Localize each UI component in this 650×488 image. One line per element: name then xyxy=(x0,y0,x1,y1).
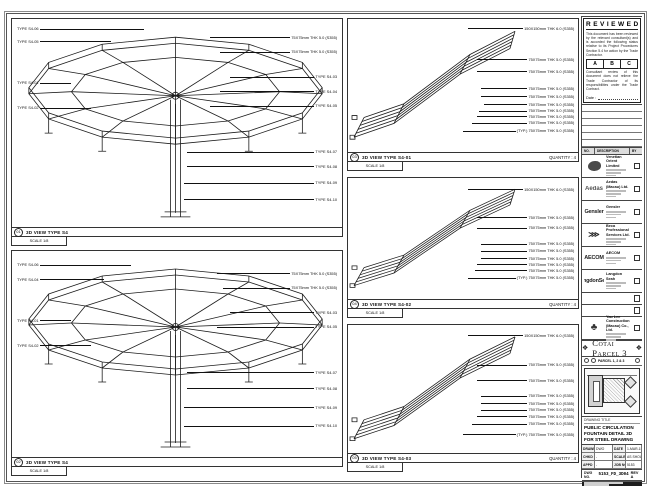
consultant-info: Venetian Orient Limited xyxy=(606,155,632,176)
drawing-title: PUBLIC CIRCULATION FOUNTAIN DETAIL 3D FO… xyxy=(584,424,640,443)
rev-col-description: DESCRIPTION xyxy=(595,148,630,154)
checkbox-icon xyxy=(634,325,641,332)
drawing-sheet-screenshot: TYPE S4-06TYPE S4-05TYPE S4-01TYPE S4-02… xyxy=(0,0,650,488)
scale-label: SCALE 1/8 xyxy=(11,467,67,476)
key-plan-block-hatched xyxy=(603,378,624,403)
reviewed-stamp-section: REVIEWED This document has been reviewed… xyxy=(582,17,642,105)
key-plan-header: PARCEL 1, 2 & 3 xyxy=(582,357,642,366)
scale-label: SCALE 1/8 xyxy=(11,237,67,246)
key-plan-pavilion xyxy=(624,376,637,389)
checkbox-icon xyxy=(634,307,641,314)
key-plan-pavilion xyxy=(624,395,637,408)
address-placeholder-line xyxy=(606,260,621,262)
title-block-fields: DRAWN DWO DATE 1-MAR-15 CHKD - SCALE AS … xyxy=(582,445,642,470)
revision-row-empty xyxy=(582,112,642,119)
revision-row-empty xyxy=(582,140,642,147)
rev-col-no: NO. xyxy=(582,148,595,154)
stamp-date-row: Date : xyxy=(586,93,638,101)
consultant-info: Aedas (Macau) Ltd. xyxy=(606,180,632,197)
revision-row-empty xyxy=(582,126,642,133)
field-jobno-label: JOB NO. xyxy=(613,461,626,469)
yaulee-tree-icon: ♣ xyxy=(591,323,598,333)
plot-reference-bar xyxy=(582,484,642,486)
address-placeholder-line xyxy=(606,333,626,335)
reviewed-stamp: REVIEWED This document has been reviewed… xyxy=(583,18,641,103)
project-title: Cotai Parcel 3 xyxy=(592,338,631,358)
aedas-logo-icon: Aedas xyxy=(584,186,604,192)
sheet-inner-border: TYPE S4-06TYPE S4-05TYPE S4-01TYPE S4-02… xyxy=(6,13,645,482)
address-placeholder-line xyxy=(606,175,616,177)
beca-chevrons-icon: ⋙ xyxy=(588,230,599,239)
scale-label: SCALE 1/8 xyxy=(347,463,403,472)
address-placeholder-line xyxy=(606,263,616,265)
drawing-number-row: DWG NO. 5153_FD_3D04 REV A xyxy=(582,470,642,481)
field-appd-label: APPD xyxy=(582,461,595,469)
field-date-label: DATE xyxy=(613,445,626,453)
pipe-wireframe xyxy=(348,19,578,152)
revision-badge: REV A xyxy=(631,471,640,479)
checkbox-icon xyxy=(634,255,641,262)
sheet-border: TYPE S4-06TYPE S4-05TYPE S4-01TYPE S4-02… xyxy=(4,11,647,484)
key-plan-block-west xyxy=(588,375,603,407)
consultant-row: AECOMAECOM xyxy=(582,247,642,270)
checkbox-icon xyxy=(634,232,641,239)
panel-title: 3D VIEW TYPE S4-02 xyxy=(362,302,411,307)
scale-label: SCALE 1/8 xyxy=(347,309,403,318)
consultant-row: AedasAedas (Macau) Ltd. xyxy=(582,178,642,201)
consultant-row: ♣Yau Lee Construction (Macau) Co., Ltd. xyxy=(582,317,642,340)
address-placeholder-line xyxy=(606,241,621,243)
marker-dot-icon xyxy=(635,358,640,363)
panel-title-bar: 03 3D VIEW TYPE S4-01 QUANTITY : 4 xyxy=(347,153,579,162)
address-placeholder-line xyxy=(606,193,621,195)
marker-dot-icon xyxy=(591,358,596,363)
revision-row-empty xyxy=(582,133,642,140)
project-banner: ❖ Cotai Parcel 3 ❖ xyxy=(582,341,642,357)
consultant-name: Gensler xyxy=(606,205,632,209)
gensler-wordmark: Gensler xyxy=(584,209,603,215)
address-placeholder-line xyxy=(606,257,626,259)
canopy-wireframe xyxy=(12,19,342,227)
panel-title-bar: 02 3D VIEW TYPE S4 xyxy=(11,458,343,467)
address-placeholder-line xyxy=(606,238,626,240)
consultant-info: Gensler xyxy=(606,205,632,218)
address-placeholder-line xyxy=(606,172,621,174)
grade-c: C xyxy=(621,60,637,68)
north-arrow-icon xyxy=(584,358,589,363)
grade-b: B xyxy=(604,60,621,68)
consultant-info: Beca Professional Services Ltd. xyxy=(606,224,632,245)
yaulee-logo-icon: ♣ xyxy=(584,323,604,333)
consultant-name: AECOM xyxy=(606,251,632,255)
consultant-name: Yau Lee Construction (Macau) Co., Ltd. xyxy=(606,315,632,332)
date-fill-line xyxy=(598,95,638,100)
reviewed-stamp-disclaimer: Consultant review of this document does … xyxy=(586,69,638,93)
consultant-name: Aedas (Macau) Ltd. xyxy=(606,180,632,189)
detail-number-bubble: 03 xyxy=(350,153,359,162)
field-drawn-label: DRAWN xyxy=(582,445,595,453)
venetian-swirl-icon xyxy=(588,161,601,171)
key-plan-courtyard xyxy=(593,381,600,402)
consultant-row-empty xyxy=(582,293,642,305)
dwg-no-value: 5153_FD_3D04 xyxy=(598,473,628,477)
consultant-row: LangdonSeahLangdon Seah xyxy=(582,270,642,293)
detail-number: 02 xyxy=(16,460,20,464)
venetian-logo-icon xyxy=(584,161,604,171)
detail-number-bubble: 01 xyxy=(14,228,23,237)
key-plan-map xyxy=(584,368,640,414)
beca-logo-icon: ⋙ xyxy=(584,230,604,239)
quantity-label: QUANTITY : 4 xyxy=(549,302,576,307)
panel-title-bar: 05 3D VIEW TYPE S4-03 QUANTITY : 4 xyxy=(347,454,579,463)
pipe-assembly-drawing: 150X150mm THK 6.0 (S355)75X75mm THK 5.0 … xyxy=(347,324,579,454)
ornament-icon: ❖ xyxy=(636,344,642,352)
address-placeholder-line xyxy=(606,211,626,213)
aecom-logo-icon: AECOM xyxy=(584,255,604,261)
address-placeholder-line xyxy=(606,169,626,171)
address-placeholder-line xyxy=(606,282,626,284)
pipe-wireframe xyxy=(348,178,578,299)
detail-number: 04 xyxy=(352,302,356,306)
detail-number-bubble: 04 xyxy=(350,300,359,309)
quantity-label: QUANTITY : 4 xyxy=(549,155,576,160)
consultant-list: Venetian Orient LimitedAedasAedas (Macau… xyxy=(582,155,642,341)
view-panel-s4-02: 150X150mm THK 6.0 (S355)75X75mm THK 5.0 … xyxy=(347,177,579,318)
checkbox-icon xyxy=(634,163,641,170)
pipe-wireframe xyxy=(348,325,578,453)
ornament-icon: ❖ xyxy=(582,344,588,352)
consultant-name: Venetian Orient Limited xyxy=(606,155,632,168)
scale-label: SCALE 1/8 xyxy=(347,162,403,171)
langdon-wordmark: LangdonSeah xyxy=(584,278,604,284)
gensler-logo-icon: Gensler xyxy=(584,209,604,215)
consultant-name: Langdon Seah xyxy=(606,272,632,281)
checkbox-icon xyxy=(634,209,641,216)
field-chkd-value: - xyxy=(595,453,613,461)
address-placeholder-line xyxy=(606,217,616,219)
address-placeholder-line xyxy=(606,190,626,192)
revision-table: NO. DESCRIPTION BY xyxy=(582,105,642,155)
revision-row-empty xyxy=(582,105,642,112)
revision-row-empty xyxy=(582,119,642,126)
field-scale-value: AS SHOWN xyxy=(626,453,642,461)
title-block: DO NOT SCALE DRAWING - VERIFY ALL DIMENS… xyxy=(581,16,642,478)
consultant-name: Beca Professional Services Ltd. xyxy=(606,224,632,237)
pipe-assembly-drawing: 150X150mm THK 6.0 (S355)75X75mm THK 5.0 … xyxy=(347,177,579,300)
consultant-row: Venetian Orient Limited xyxy=(582,155,642,178)
panel-title: 3D VIEW TYPE S4 xyxy=(26,460,68,465)
detail-number-bubble: 02 xyxy=(14,458,23,467)
view-panel-s4-b: TYPE S4-06TYPE S4-04TYPE S4-01TYPE S4-02… xyxy=(11,250,343,476)
field-appd-value: - xyxy=(595,461,613,469)
address-placeholder-line xyxy=(606,285,621,287)
view-panel-s4-01: 150X150mm THK 6.0 (S355)75X75mm THK 5.0 … xyxy=(347,18,579,171)
consultant-info: Langdon Seah xyxy=(606,272,632,289)
plot-reference-placeholder xyxy=(584,484,609,486)
field-drawn-value: DWO xyxy=(595,445,613,453)
view-panel-s4-03: 150X150mm THK 6.0 (S355)75X75mm THK 5.0 … xyxy=(347,324,579,472)
key-plan-label: PARCEL 1, 2 & 3 xyxy=(598,359,624,363)
pipe-assembly-drawing: 150X150mm THK 6.0 (S355)75X75mm THK 5.0 … xyxy=(347,18,579,153)
detail-number: 05 xyxy=(352,456,356,460)
canopy-structure-drawing: TYPE S4-06TYPE S4-04TYPE S4-01TYPE S4-02… xyxy=(11,250,343,458)
revision-table-header: NO. DESCRIPTION BY xyxy=(582,147,642,154)
canopy-wireframe xyxy=(12,251,342,457)
field-scale-label: SCALE xyxy=(613,453,626,461)
consultant-row: ⋙Beca Professional Services Ltd. xyxy=(582,224,642,247)
panel-title-bar: 01 3D VIEW TYPE S4 xyxy=(11,228,343,237)
address-placeholder-line xyxy=(606,288,616,290)
aedas-wordmark: Aedas xyxy=(585,186,603,192)
review-grade-boxes: A B C xyxy=(586,59,638,69)
field-chkd-label: CHKD xyxy=(582,453,595,461)
field-date-value: 1-MAR-15 xyxy=(626,445,642,453)
detail-number-bubble: 05 xyxy=(350,454,359,463)
consultant-info: Yau Lee Construction (Macau) Co., Ltd. xyxy=(606,315,632,341)
detail-number: 01 xyxy=(16,230,20,234)
consultant-info: AECOM xyxy=(606,251,632,264)
panel-title: 3D VIEW TYPE S4-03 xyxy=(362,456,411,461)
date-label: Date : xyxy=(586,96,596,100)
drawing-title-section: DRAWING TITLE PUBLIC CIRCULATION FOUNTAI… xyxy=(582,417,642,445)
panel-title: 3D VIEW TYPE S4 xyxy=(26,230,68,235)
rev-col-by: BY xyxy=(630,148,642,154)
checkbox-icon xyxy=(634,278,641,285)
panel-title-bar: 04 3D VIEW TYPE S4-02 QUANTITY : 4 xyxy=(347,300,579,309)
langdon-logo-icon: LangdonSeah xyxy=(584,278,604,284)
consultant-row: GenslerGensler xyxy=(582,201,642,224)
checkbox-icon xyxy=(634,295,641,302)
dwg-no-label: DWG NO. xyxy=(584,471,596,479)
field-jobno-value: 5153 xyxy=(626,461,642,469)
panel-title: 3D VIEW TYPE S4-01 xyxy=(362,155,411,160)
address-placeholder-line xyxy=(606,214,621,216)
key-plan: PARCEL 1, 2 & 3 xyxy=(582,357,642,417)
checkbox-icon xyxy=(634,186,641,193)
reviewed-stamp-paragraph: This document has been reviewed by the r… xyxy=(586,30,638,59)
reviewed-stamp-title: REVIEWED xyxy=(586,20,638,30)
aecom-wordmark: AECOM xyxy=(584,255,603,261)
view-panel-s4-a: TYPE S4-06TYPE S4-05TYPE S4-01TYPE S4-02… xyxy=(11,18,343,246)
address-placeholder-line xyxy=(606,244,616,246)
quantity-label: QUANTITY : 4 xyxy=(549,456,576,461)
canopy-structure-drawing: TYPE S4-06TYPE S4-05TYPE S4-01TYPE S4-02… xyxy=(11,18,343,228)
detail-number: 03 xyxy=(352,155,356,159)
grade-a: A xyxy=(587,60,604,68)
address-placeholder-line xyxy=(606,196,616,198)
